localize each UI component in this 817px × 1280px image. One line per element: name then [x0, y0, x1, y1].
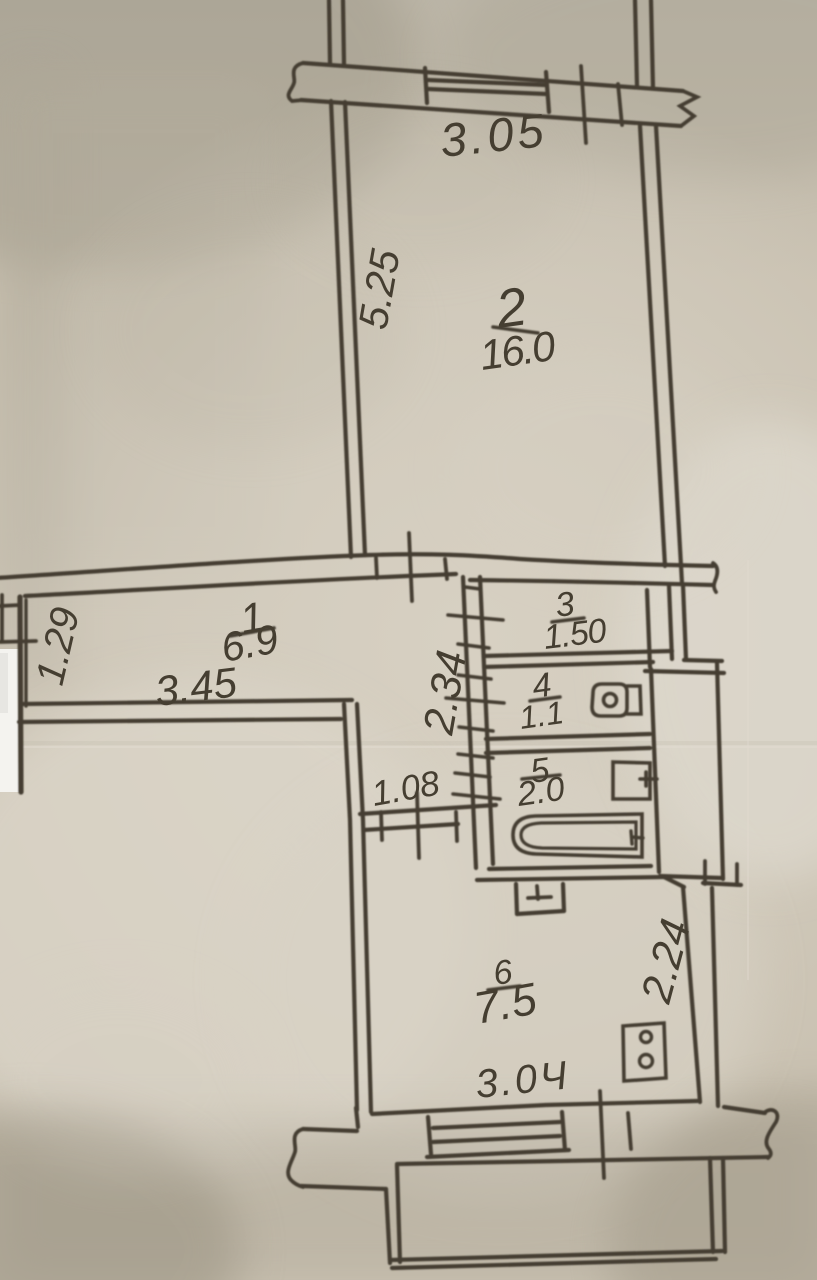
svg-text:1.1: 1.1 — [517, 694, 566, 736]
svg-text:2.0: 2.0 — [514, 770, 567, 814]
svg-text:3.05: 3.05 — [438, 103, 550, 167]
svg-text:1.50: 1.50 — [541, 612, 608, 657]
svg-text:7.5: 7.5 — [470, 973, 541, 1034]
svg-text:3.45: 3.45 — [152, 658, 239, 715]
